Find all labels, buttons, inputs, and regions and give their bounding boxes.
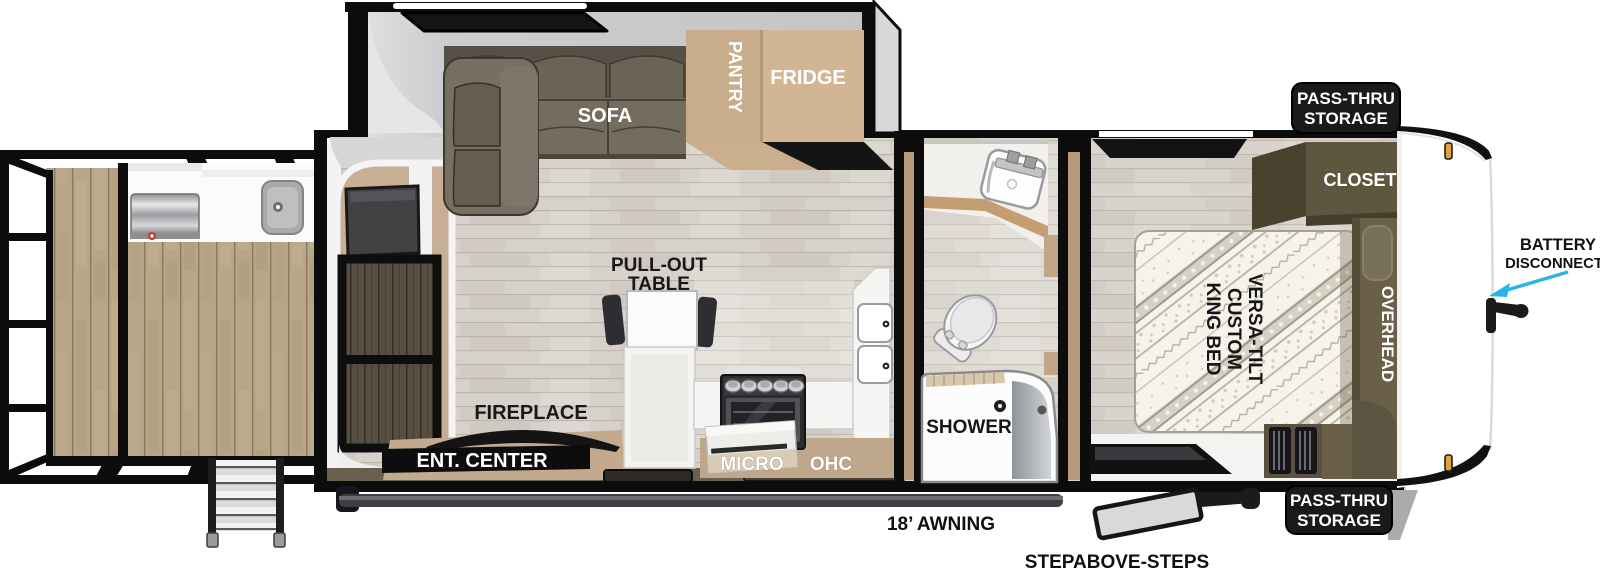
svg-text:VERSA-TILT: VERSA-TILT	[1244, 274, 1265, 385]
svg-text:MICRO: MICRO	[720, 454, 783, 475]
svg-text:SOFA: SOFA	[578, 105, 632, 127]
svg-text:KING BED: KING BED	[1202, 283, 1223, 376]
svg-text:DISCONNECT: DISCONNECT	[1505, 256, 1600, 272]
svg-text:CUSTOM: CUSTOM	[1223, 288, 1244, 370]
svg-text:PASS-THRU: PASS-THRU	[1297, 89, 1395, 108]
svg-text:OHC: OHC	[810, 454, 853, 475]
svg-text:SHOWER: SHOWER	[926, 417, 1012, 438]
svg-text:FRIDGE: FRIDGE	[770, 67, 846, 89]
svg-text:CLOSET: CLOSET	[1323, 170, 1396, 190]
svg-text:PANTRY: PANTRY	[725, 41, 745, 113]
svg-text:PASS-THRU: PASS-THRU	[1290, 491, 1388, 510]
svg-text:STORAGE: STORAGE	[1297, 511, 1381, 530]
svg-text:PULL-OUT: PULL-OUT	[611, 255, 707, 276]
svg-text:STORAGE: STORAGE	[1304, 109, 1388, 128]
svg-text:OVERHEAD: OVERHEAD	[1378, 286, 1397, 382]
svg-text:ENT. CENTER: ENT. CENTER	[416, 450, 548, 472]
svg-text:18’ AWNING: 18’ AWNING	[887, 514, 995, 535]
svg-text:BATTERY: BATTERY	[1520, 236, 1596, 254]
svg-text:STEPABOVE-STEPS: STEPABOVE-STEPS	[1025, 552, 1209, 573]
svg-text:FIREPLACE: FIREPLACE	[474, 402, 587, 424]
